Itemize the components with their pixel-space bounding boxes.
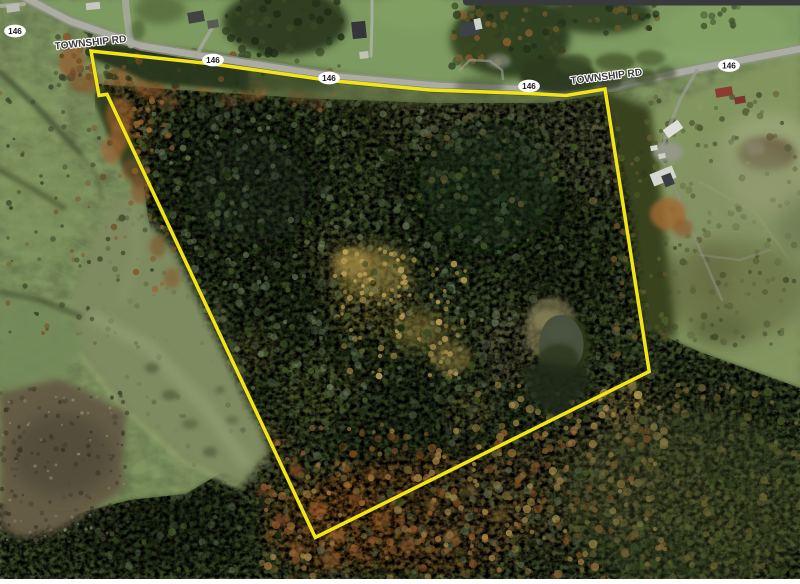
svg-text:146: 146 xyxy=(206,56,220,65)
svg-text:146: 146 xyxy=(722,61,736,70)
svg-text:146: 146 xyxy=(322,74,336,83)
svg-text:146: 146 xyxy=(8,27,22,36)
svg-text:146: 146 xyxy=(522,82,536,91)
